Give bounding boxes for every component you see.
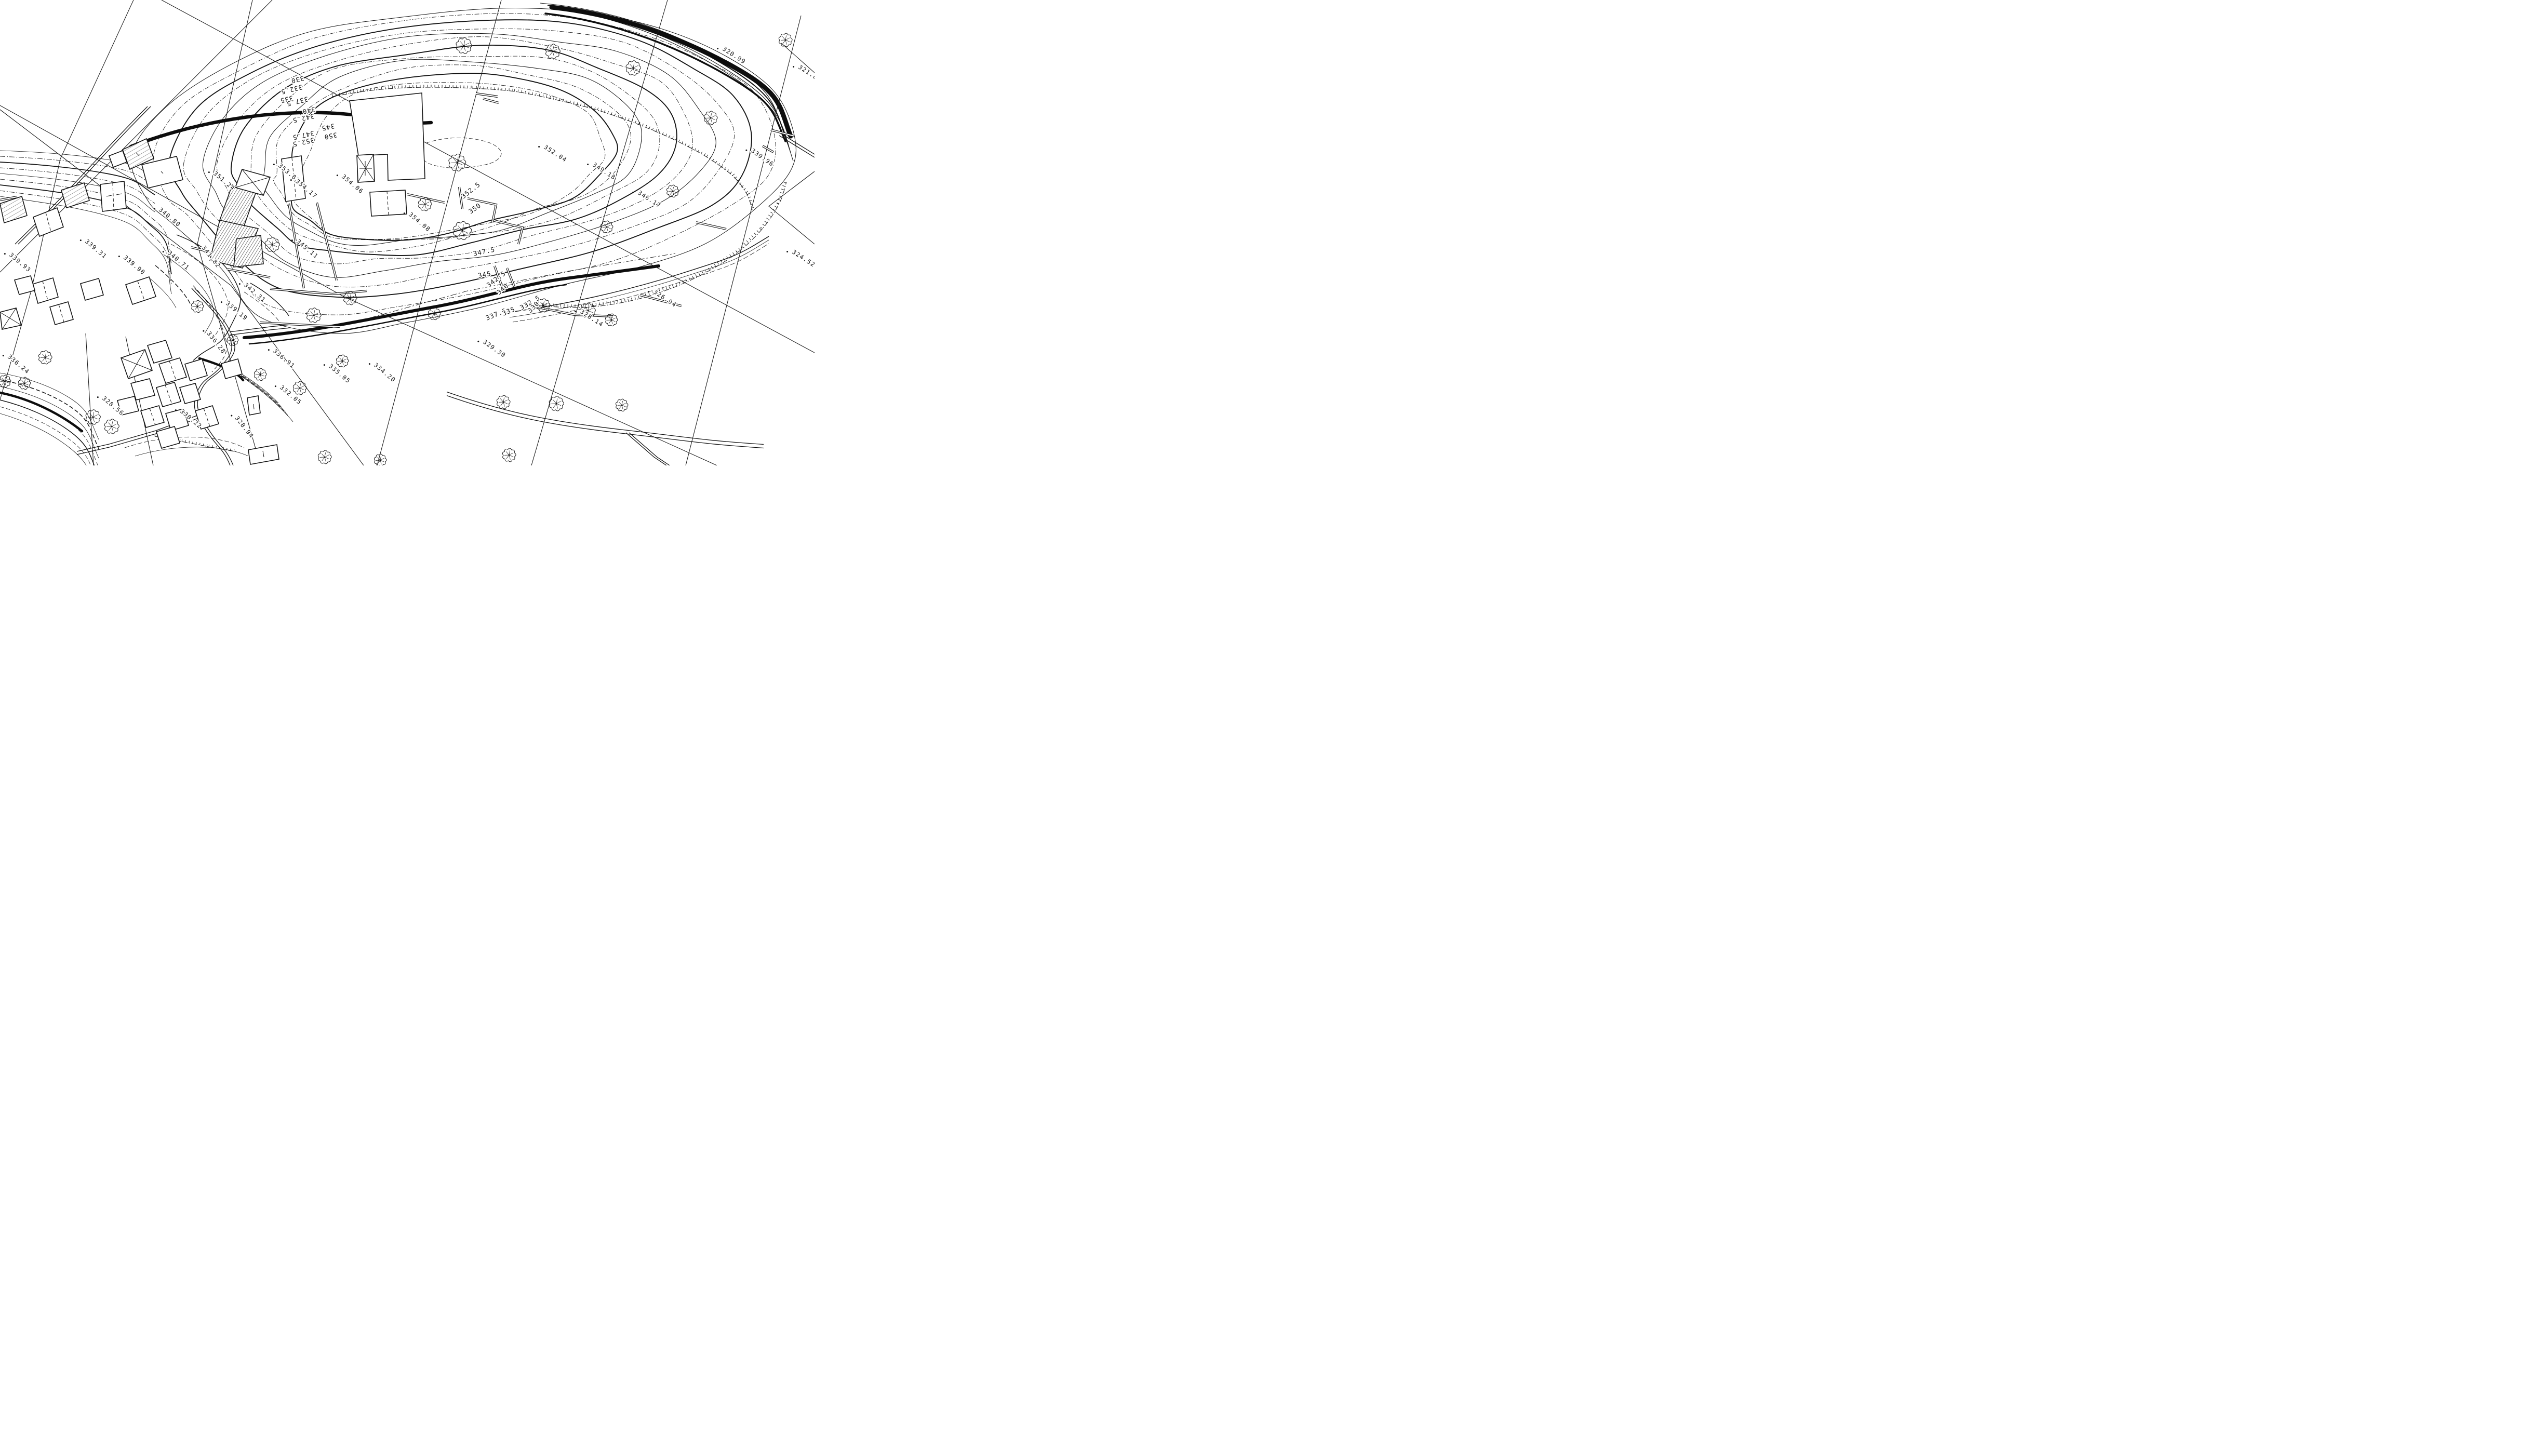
spot-elevation-label: 329.30 xyxy=(482,338,507,359)
tree-icon xyxy=(38,351,52,364)
steep-slope-band xyxy=(0,393,82,431)
slope-hachure-baseline xyxy=(535,182,786,308)
tree-branch xyxy=(109,423,112,426)
tree-branch xyxy=(314,315,315,320)
elevation-point-dot xyxy=(786,251,788,252)
tree-center xyxy=(342,360,343,362)
road-edge xyxy=(447,396,764,448)
buildings-layer xyxy=(0,93,425,464)
elevation-point-dot xyxy=(275,385,276,387)
building-footprint xyxy=(81,278,103,300)
contour-line xyxy=(0,413,99,465)
tree-center xyxy=(606,226,608,228)
tree-icon xyxy=(497,395,510,409)
tree-center xyxy=(45,357,46,358)
spot-elevation-label: 352.04 xyxy=(542,143,568,164)
building-footprint xyxy=(126,277,156,304)
road-edge xyxy=(779,132,815,154)
tree-center xyxy=(272,244,273,246)
tree-center xyxy=(543,305,544,306)
wall-line-core xyxy=(483,99,499,103)
spot-elevation-label: 339.31 xyxy=(84,238,109,260)
tree-icon xyxy=(601,221,613,233)
tree-branch xyxy=(311,315,314,319)
contour-line xyxy=(135,447,248,456)
survey-traverse-line xyxy=(86,333,94,465)
elevation-point-dot xyxy=(337,175,338,176)
tree-icon xyxy=(104,419,119,434)
tree-branch xyxy=(550,51,553,56)
tree-branch xyxy=(112,426,116,429)
tree-center xyxy=(611,319,612,321)
tree-center xyxy=(710,117,712,119)
map-canvas: 320.99321.81339.96324.52352.04349.18346.… xyxy=(0,0,815,465)
tree-center xyxy=(672,191,674,192)
elevation-point-dot xyxy=(538,146,540,148)
tree-center xyxy=(503,402,504,403)
contour-line xyxy=(548,5,788,144)
spot-elevation-label: 339.90 xyxy=(122,254,147,276)
tree-branch xyxy=(93,412,94,417)
tree-branch xyxy=(556,404,561,406)
contour-elevation-label: 352.5 xyxy=(460,180,482,200)
elevation-point-dot xyxy=(793,66,794,68)
tree-branch xyxy=(556,398,557,404)
elevation-point-dot xyxy=(80,239,82,241)
contour-line xyxy=(291,83,605,239)
tree-branch xyxy=(90,413,93,417)
tree-branch xyxy=(588,308,593,311)
elevation-point-dot xyxy=(575,311,576,312)
elevation-point-dot xyxy=(648,291,649,292)
elevation-point-dot xyxy=(239,283,241,285)
elevation-point-dot xyxy=(291,239,293,241)
elevation-point-dot xyxy=(745,150,747,151)
contour-elevation-label: 345 xyxy=(321,122,335,132)
tree-center xyxy=(434,313,435,315)
contour-line xyxy=(273,65,631,240)
elevation-point-dot xyxy=(175,409,177,411)
contour-elevation-label: 345 xyxy=(477,270,492,279)
tree-icon xyxy=(616,399,628,411)
tree-center xyxy=(24,383,25,384)
elevation-point-dot xyxy=(404,212,405,214)
building-footprint xyxy=(156,382,181,407)
tree-icon xyxy=(336,355,349,367)
building-footprint xyxy=(148,340,172,363)
tree-icon xyxy=(86,410,100,424)
elevation-point-dot xyxy=(203,330,204,332)
contour-line xyxy=(125,437,244,448)
slope-hachure-ticks xyxy=(535,182,786,308)
elevation-point-dot xyxy=(587,164,589,165)
tree-branch xyxy=(633,68,635,73)
tree-branch xyxy=(588,305,589,311)
building-footprint xyxy=(33,208,63,236)
tree-center xyxy=(457,162,458,164)
tree-branch xyxy=(633,68,638,70)
tree-branch xyxy=(460,42,464,46)
elevation-point-dot xyxy=(477,341,479,342)
survey-traverse-layer xyxy=(0,0,815,465)
tree-icon xyxy=(293,381,306,395)
elevation-point-dot xyxy=(324,364,325,366)
spot-elevation-label: 339.93 xyxy=(8,251,33,274)
tree-branch xyxy=(553,404,556,408)
contour-lines-layer xyxy=(0,3,796,465)
elevation-point-dot xyxy=(632,192,634,193)
elevation-point-dot xyxy=(273,164,275,165)
survey-traverse-line xyxy=(769,171,815,244)
tree-center xyxy=(556,403,557,405)
survey-traverse-line xyxy=(377,0,501,465)
tree-icon xyxy=(18,377,31,390)
spot-elevation-label: 324.52 xyxy=(791,248,815,269)
tree-center xyxy=(785,39,786,41)
tree-icon xyxy=(306,308,321,323)
wall-line-core xyxy=(260,323,340,327)
tree-center xyxy=(633,68,634,69)
elevation-point-dot xyxy=(97,396,99,398)
wall-line-core xyxy=(696,222,726,229)
wall-line-core xyxy=(407,194,445,203)
tree-icon xyxy=(545,44,560,59)
spot-elevation-label: 349.18 xyxy=(591,161,617,181)
tree-branch xyxy=(314,310,315,315)
tree-center xyxy=(552,51,554,52)
tree-branch xyxy=(633,65,638,68)
tree-center xyxy=(621,405,623,406)
elevation-point-dot xyxy=(221,301,222,303)
elevation-point-dot xyxy=(197,245,199,246)
topographic-survey-map: 320.99321.81339.96324.52352.04349.18346.… xyxy=(0,0,815,465)
tree-icon xyxy=(666,185,679,197)
building-footprint xyxy=(156,426,180,448)
tree-icon xyxy=(449,154,466,171)
building-footprint xyxy=(33,278,58,303)
building-footprint xyxy=(159,358,186,383)
spot-elevation-label: 335.05 xyxy=(327,363,352,385)
spot-elevation-label: 334.20 xyxy=(372,362,397,384)
hatched-building-footprint xyxy=(234,235,263,267)
tree-center xyxy=(324,457,326,458)
contour-line xyxy=(506,236,769,313)
elevation-point-dot xyxy=(163,251,164,252)
hatched-building-footprint xyxy=(61,183,89,208)
tree-branch xyxy=(556,401,561,404)
tree-icon xyxy=(549,396,564,411)
tree-branch xyxy=(272,245,274,249)
wall-line-core xyxy=(227,269,270,277)
tree-branch xyxy=(109,426,112,431)
tree-branch xyxy=(457,163,463,165)
road-edge xyxy=(629,433,670,465)
spot-elevation-label: 332.05 xyxy=(278,384,303,406)
elevation-point-dot xyxy=(231,415,232,417)
spot-elevation-label: 342.31 xyxy=(243,282,268,304)
contour-line xyxy=(250,283,289,316)
road-edge xyxy=(779,136,815,157)
road-edge xyxy=(447,392,764,445)
contour-elevation-label: 330 xyxy=(290,74,304,85)
survey-traverse-line xyxy=(686,16,801,465)
tree-branch xyxy=(630,64,633,68)
wall-line-core xyxy=(317,203,337,280)
tree-center xyxy=(424,204,426,205)
contour-elevation-label: 332.5 xyxy=(280,83,303,96)
building-footprint xyxy=(185,359,207,381)
contour-line xyxy=(155,265,191,304)
tree-branch xyxy=(462,231,468,233)
contour-line xyxy=(251,56,660,252)
tree-icon xyxy=(418,197,432,211)
elevation-point-dot xyxy=(208,171,210,173)
tree-branch xyxy=(464,41,465,46)
elevation-point-dot xyxy=(154,208,155,209)
spot-elevation-label: 321.81 xyxy=(797,63,815,84)
steep-slope-band xyxy=(249,285,566,344)
tree-branch xyxy=(112,421,113,426)
survey-traverse-line xyxy=(531,0,668,465)
tree-center xyxy=(111,426,113,428)
tree-icon xyxy=(254,368,266,381)
spot-elevation-label: 328.14 xyxy=(579,308,605,328)
wall-line-core xyxy=(763,146,773,152)
tree-branch xyxy=(633,63,634,68)
tree-branch xyxy=(112,424,116,426)
building-footprint xyxy=(180,383,201,404)
tree-branch xyxy=(464,43,469,46)
spot-elevation-label: 340.80 xyxy=(157,206,182,229)
elevation-point-dot xyxy=(118,256,120,257)
tree-branch xyxy=(93,415,98,417)
tree-branch xyxy=(93,417,98,419)
tree-branch xyxy=(311,312,314,315)
tree-branch xyxy=(269,245,272,249)
tree-center xyxy=(197,306,198,308)
elevation-point-dot xyxy=(4,253,6,255)
spot-elevation-label: 351.24 xyxy=(212,170,237,192)
elevation-point-dot xyxy=(3,355,4,356)
building-footprint xyxy=(15,276,35,295)
tree-center xyxy=(463,45,465,47)
elevation-point-dot xyxy=(290,179,292,181)
tree-branch xyxy=(112,426,113,431)
tree-center xyxy=(509,455,510,456)
building-footprint xyxy=(100,181,126,211)
tree-branch xyxy=(556,404,558,408)
tree-branch xyxy=(272,239,273,245)
steep-slope-band xyxy=(244,266,659,338)
tree-branch xyxy=(93,417,95,422)
tree-icon xyxy=(228,335,238,345)
tree-center xyxy=(4,381,6,382)
spot-elevation-label: 336.91 xyxy=(272,348,297,370)
tree-branch xyxy=(459,231,462,236)
contour-elevation-label: 350 xyxy=(323,131,338,141)
tree-center xyxy=(299,388,301,389)
tree-center xyxy=(462,230,463,232)
tree-icon xyxy=(191,300,204,313)
contour-line xyxy=(217,37,692,264)
spot-elevation-label: 339.19 xyxy=(224,300,249,322)
tree-center xyxy=(260,374,261,376)
elevation-point-dot xyxy=(369,363,370,365)
tree-branch xyxy=(462,224,463,231)
tree-icon xyxy=(779,33,792,47)
tree-icon xyxy=(265,237,279,252)
tree-icon xyxy=(318,450,331,464)
tree-branch xyxy=(553,51,554,56)
slope-hachure-layer xyxy=(155,85,786,452)
elevation-point-dot xyxy=(717,48,718,49)
tree-branch xyxy=(314,315,318,317)
tree-branch xyxy=(272,245,277,247)
tree-center xyxy=(92,417,94,418)
spot-elevation-label: 346.17 xyxy=(636,189,662,209)
tree-branch xyxy=(272,242,277,245)
tree-branch xyxy=(269,241,272,245)
elevation-point-dot xyxy=(268,349,270,351)
building-footprint xyxy=(50,302,73,325)
contour-elevation-label: 350 xyxy=(467,201,483,215)
spot-elevation-label: 354.08 xyxy=(407,211,432,233)
contour-line xyxy=(540,3,785,136)
tree-branch xyxy=(553,400,556,404)
tree-center xyxy=(232,340,234,341)
tree-icon xyxy=(704,111,717,125)
tree-center xyxy=(380,460,381,461)
spot-elevation-label: 328.94 xyxy=(234,415,256,439)
tree-center xyxy=(350,298,351,299)
tree-center xyxy=(313,315,315,316)
tree-icon xyxy=(374,454,386,465)
tree-icon xyxy=(502,448,516,462)
